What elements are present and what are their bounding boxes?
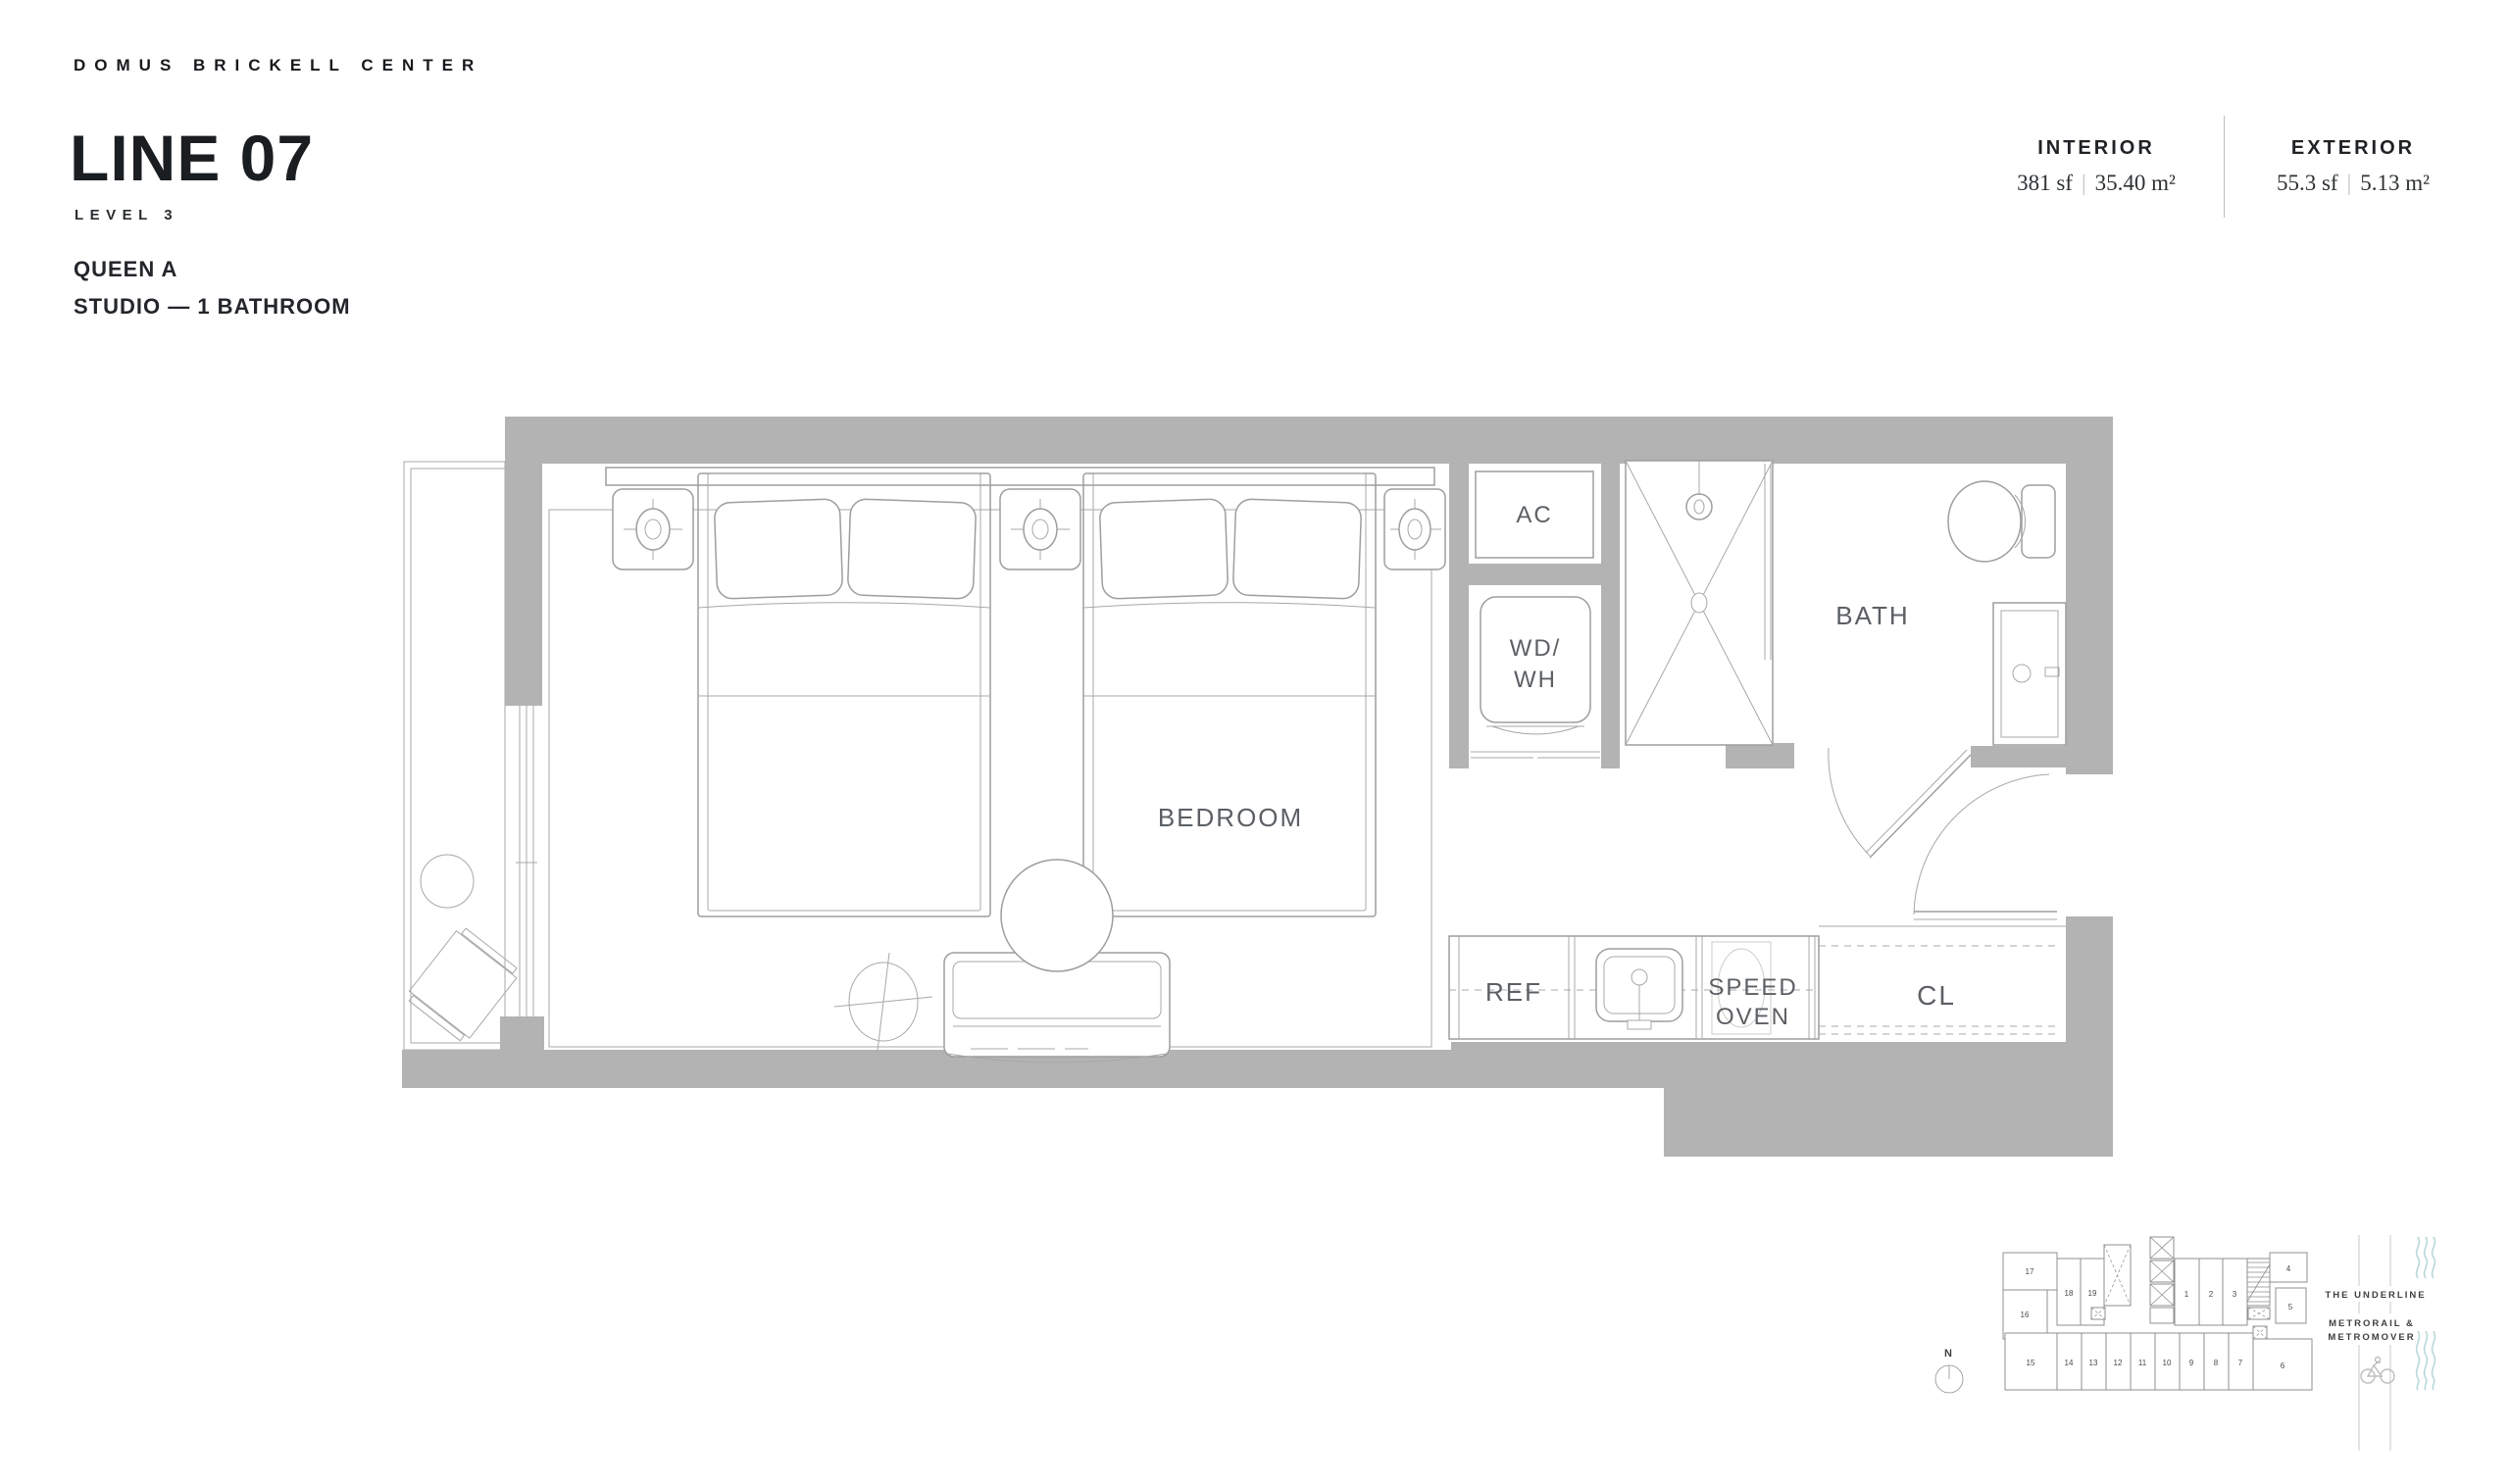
unit-14: 14 [2065,1359,2074,1367]
exterior-sf: 55.3 sf [2277,171,2338,195]
floor-plan: BEDROOM [402,417,2118,1162]
unit-type: STUDIO — 1 BATHROOM [74,294,351,320]
unit-4: 4 [2286,1264,2291,1273]
landmark-labels: THE UNDERLINE METRORAIL & METROMOVER [2316,1286,2434,1345]
shower [1626,461,1773,745]
unit-16: 16 [2021,1311,2030,1319]
oven-label: OVEN [1716,1004,1790,1030]
keyplan-units [2003,1237,2312,1390]
ac-label: AC [1516,502,1552,528]
wd-label: WD/ [1510,635,1562,662]
unit-15: 15 [2027,1359,2035,1367]
metrorail-label: METRORAIL & [2329,1318,2415,1329]
unit-3: 3 [2233,1290,2237,1299]
stat-separator: | [2073,171,2095,195]
north-arrow: N [1935,1348,1963,1393]
unit-19: 19 [2088,1289,2097,1298]
entry-closet: CL [1819,926,2066,1034]
north-label: N [1944,1348,1954,1360]
page-title: LINE 07 [70,125,314,190]
bed-right [1083,473,1376,916]
bath-label: BATH [1835,601,1909,630]
interior-m2: 35.40 m² [2095,171,2176,195]
round-table [1001,860,1113,971]
unit-1: 1 [2184,1290,2189,1299]
underline-label: THE UNDERLINE [2325,1290,2426,1301]
unit-8: 8 [2214,1359,2219,1367]
interior-values: 381 sf|35.40 m² [1981,171,2212,196]
plant [834,953,932,1051]
ac-closet: AC [1476,471,1593,558]
interior-sf: 381 sf [2017,171,2073,195]
exterior-stats: EXTERIOR 55.3 sf|5.13 m² [2237,137,2469,196]
washer-dryer: WD/ WH [1471,597,1600,758]
waves-top [2417,1237,2435,1278]
stat-separator: | [2338,171,2361,195]
vanity-sink [1993,603,2066,745]
unit-18: 18 [2065,1289,2074,1298]
nightstand-left [613,489,693,569]
exterior-label: EXTERIOR [2237,137,2469,160]
unit-17: 17 [2026,1267,2034,1276]
sliding-door [516,706,537,1016]
ref-label: REF [1485,977,1542,1007]
unit-5: 5 [2288,1303,2293,1311]
exterior-values: 55.3 sf|5.13 m² [2237,171,2469,196]
bath-door [1829,748,1971,858]
unit-12: 12 [2114,1359,2123,1367]
cl-label: CL [1917,980,1956,1011]
metromover-label: METROMOVER [2328,1332,2415,1343]
headboard [606,468,1434,485]
bicycle-icon [2361,1358,2394,1384]
unit-name: QUEEN A [74,257,177,282]
nightstand-center [1000,489,1080,569]
exterior-m2: 5.13 m² [2360,171,2430,195]
bedroom-label: BEDROOM [1158,803,1303,832]
wh-label: WH [1514,667,1557,693]
unit-7: 7 [2238,1359,2243,1367]
interior-stats: INTERIOR 381 sf|35.40 m² [1981,137,2212,196]
unit-10: 10 [2163,1359,2172,1367]
brand-name: DOMUS BRICKELL CENTER [74,56,482,75]
speed-label: SPEED [1708,974,1797,1001]
unit-11: 11 [2138,1359,2147,1367]
toilet [1948,481,2055,562]
balcony-table [421,855,474,908]
kitchen-sink [1596,949,1682,1029]
unit-13: 13 [2089,1359,2098,1367]
unit-9: 9 [2189,1359,2194,1367]
level-label: LEVEL 3 [75,207,178,223]
entry-door [1914,774,2057,919]
stats-divider [2224,116,2225,218]
nightstand-right [1384,489,1445,569]
key-plan: 17 16 18 19 1 2 3 4 5 15 14 13 12 11 10 … [1922,1225,2510,1460]
unit-6: 6 [2281,1361,2285,1370]
waves-bottom [2417,1331,2435,1390]
balcony [404,462,505,1050]
interior-label: INTERIOR [1981,137,2212,160]
bed-left [698,473,990,916]
unit-2: 2 [2209,1290,2214,1299]
